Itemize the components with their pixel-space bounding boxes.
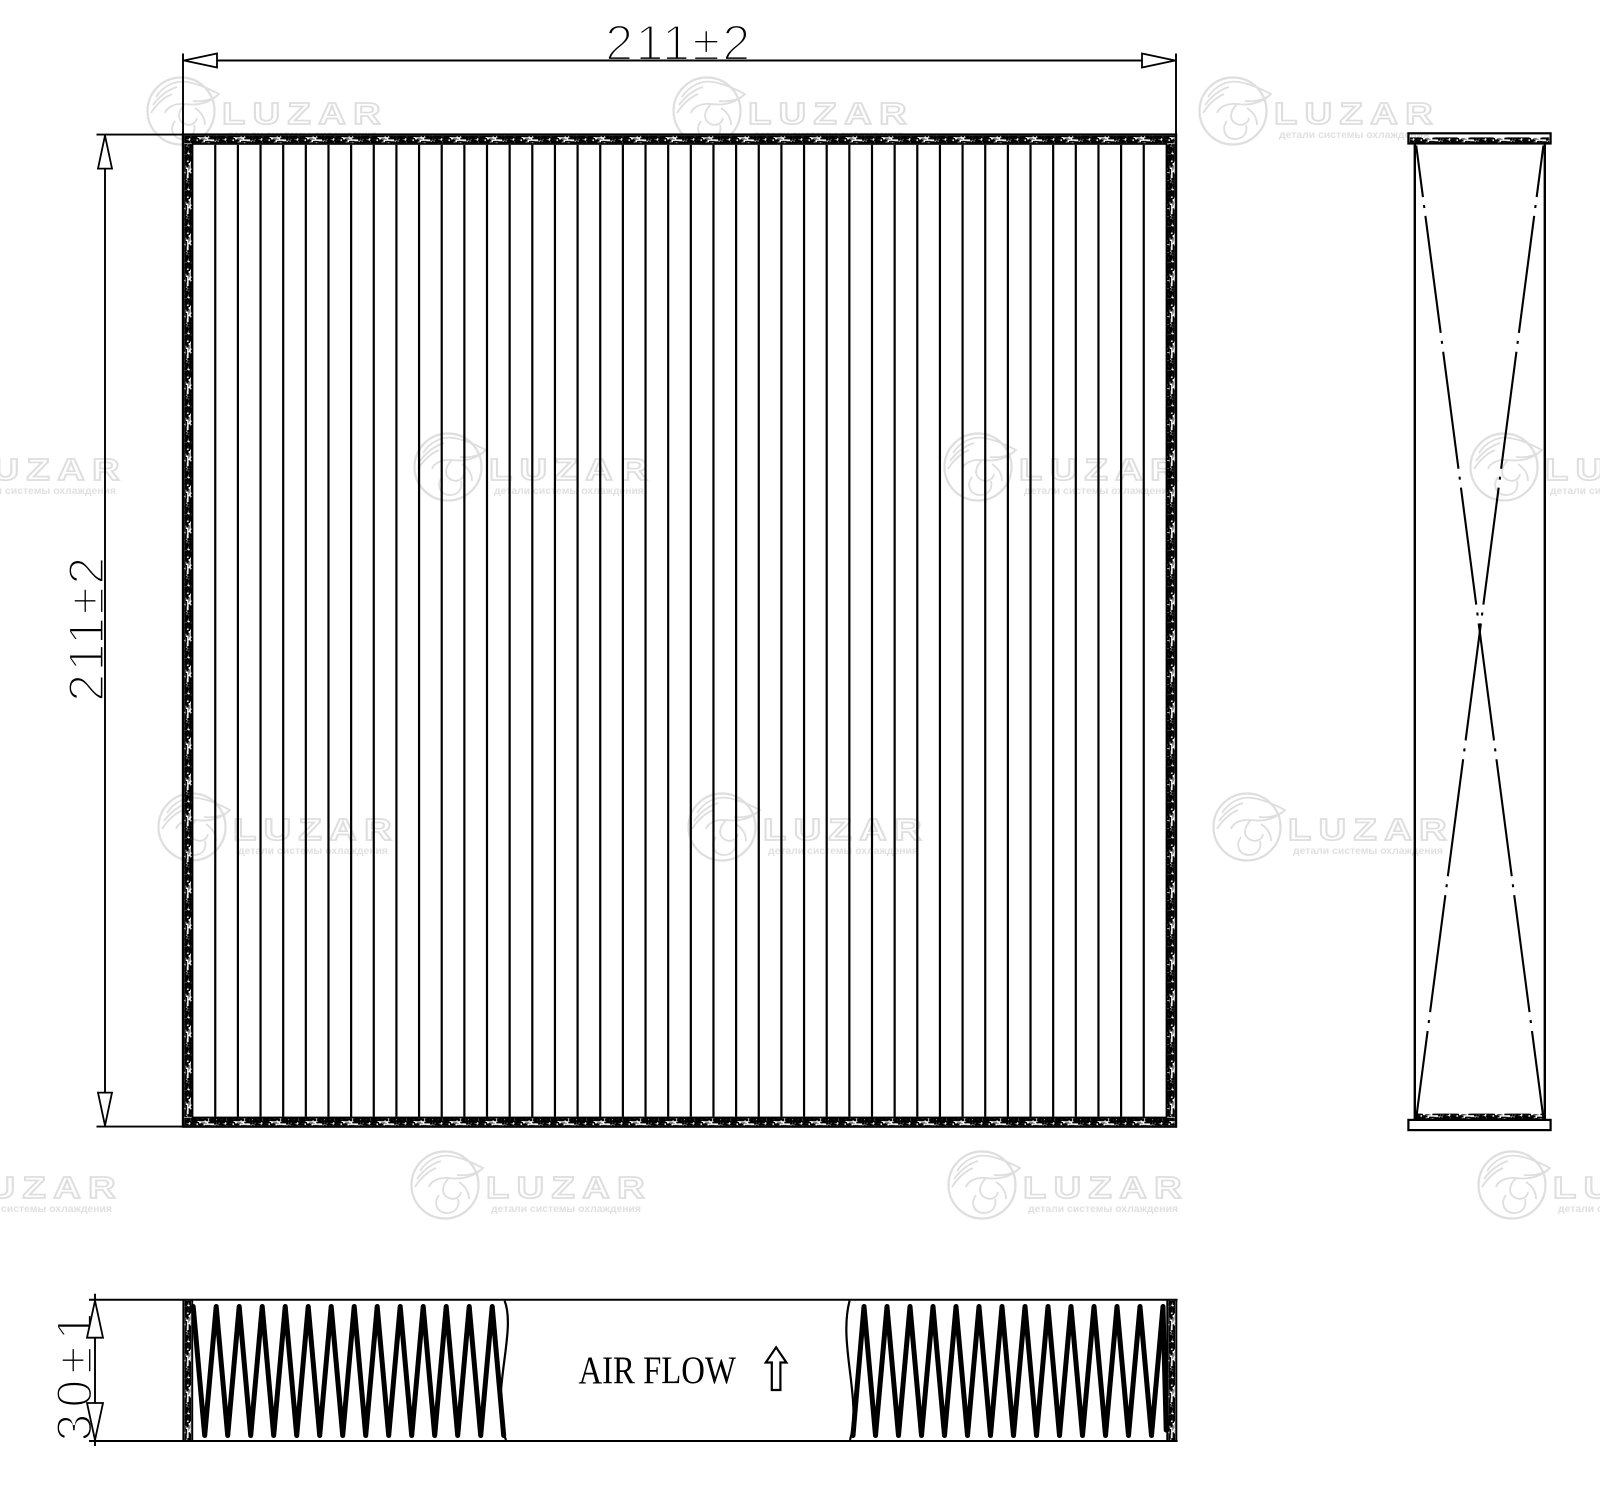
svg-text:LUZAR: LUZAR [1274, 96, 1440, 131]
svg-text:211±2: 211±2 [59, 554, 115, 701]
svg-text:LUZAR: LUZAR [489, 452, 655, 487]
svg-text:детали системы охлаждения: детали системы охлаждения [1293, 846, 1443, 857]
svg-text:LUZAR: LUZAR [1019, 452, 1185, 487]
svg-text:детали системы охлаждения: детали системы охлаждения [1550, 486, 1600, 497]
svg-text:LUZAR: LUZAR [1545, 452, 1600, 487]
svg-text:LUZAR: LUZAR [1023, 1170, 1189, 1205]
svg-text:LUZAR: LUZAR [486, 1170, 652, 1205]
svg-text:детали системы охлаждения: детали системы охлаждения [0, 486, 116, 497]
svg-text:детали системы охлаждения: детали системы охлаждения [1558, 1204, 1600, 1215]
svg-text:детали системы охлаждения: детали системы охлаждения [1279, 130, 1429, 141]
svg-text:LUZAR: LUZAR [0, 452, 127, 487]
svg-text:детали системы охлаждения: детали системы охлаждения [0, 1204, 112, 1215]
svg-text:LUZAR: LUZAR [763, 812, 929, 847]
svg-text:детали системы охлаждения: детали системы охлаждения [494, 486, 644, 497]
svg-text:LUZAR: LUZAR [1553, 1170, 1600, 1205]
svg-text:детали системы охлаждения: детали системы охлаждения [491, 1204, 641, 1215]
svg-text:LUZAR: LUZAR [0, 1170, 123, 1205]
svg-text:211±2: 211±2 [605, 15, 752, 71]
svg-text:LUZAR: LUZAR [1288, 812, 1454, 847]
svg-text:LUZAR: LUZAR [748, 96, 914, 131]
svg-text:детали системы охлаждения: детали системы охлаждения [1028, 1204, 1178, 1215]
svg-text:AIR FLOW: AIR FLOW [579, 1348, 736, 1391]
svg-text:LUZAR: LUZAR [222, 96, 388, 131]
